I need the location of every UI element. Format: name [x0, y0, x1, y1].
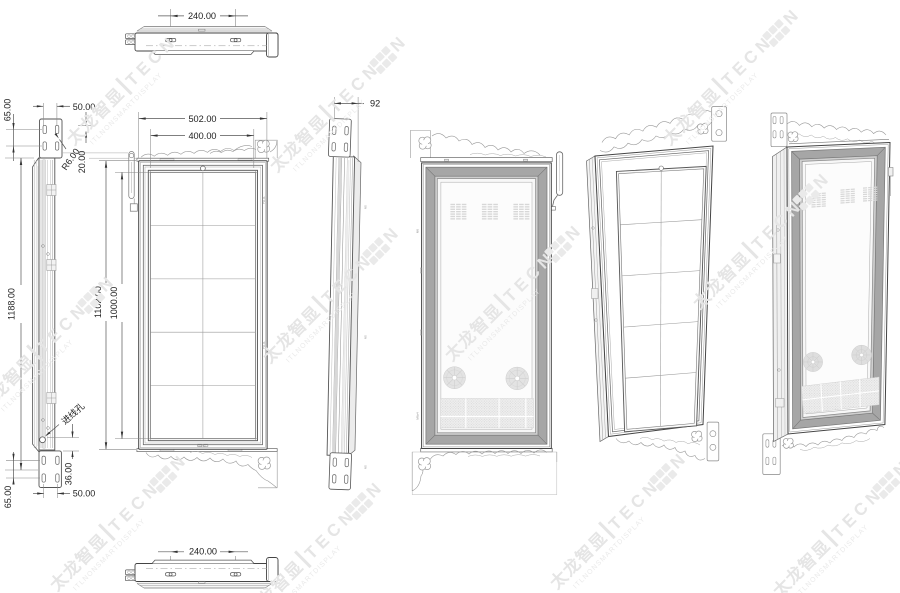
svg-text:240.00: 240.00	[188, 11, 216, 21]
svg-text:50.00: 50.00	[73, 489, 96, 499]
svg-text:tecnon: tecnon	[198, 444, 206, 448]
svg-text:92: 92	[370, 99, 380, 109]
svg-text:M6x4: M6x4	[416, 412, 420, 420]
svg-text:20.00: 20.00	[77, 151, 87, 174]
svg-text:M5: M5	[364, 335, 368, 339]
svg-text:400.00: 400.00	[188, 131, 216, 141]
svg-text:1188.00: 1188.00	[7, 288, 17, 320]
svg-text:65.00: 65.00	[3, 486, 13, 509]
svg-text:502.00: 502.00	[188, 114, 216, 124]
svg-text:M6: M6	[416, 229, 420, 233]
svg-text:M5: M5	[364, 205, 368, 209]
svg-text:M5: M5	[364, 465, 368, 469]
svg-text:36.00: 36.00	[64, 463, 74, 486]
svg-text:240.00: 240.00	[189, 547, 217, 557]
svg-text:65.00: 65.00	[3, 99, 13, 122]
svg-text:TW-XL: TW-XL	[262, 195, 266, 204]
